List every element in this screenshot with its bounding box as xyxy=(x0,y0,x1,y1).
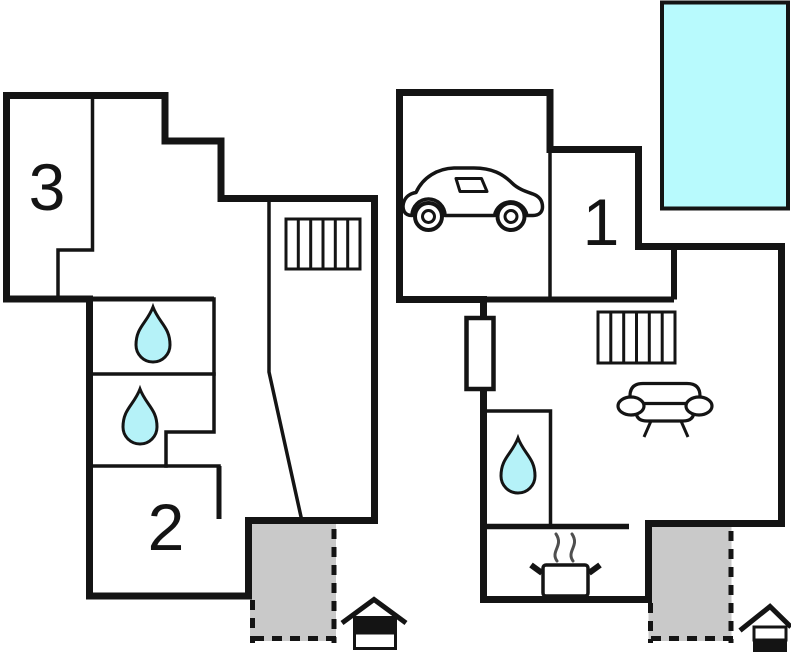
room-label-1: 1 xyxy=(583,185,620,259)
sofa-icon xyxy=(618,384,712,438)
pool-area xyxy=(662,3,788,209)
terrace-area xyxy=(649,527,732,641)
interior-walls xyxy=(58,97,302,519)
water-drop-icon xyxy=(501,438,535,493)
house-level-marker-icon xyxy=(342,600,406,649)
marker-empty-band xyxy=(355,633,396,649)
water-drop-icon xyxy=(123,389,157,444)
ground-floor-plan: 1 xyxy=(400,3,791,652)
marker-empty-band xyxy=(754,627,786,640)
stairs-icon xyxy=(286,219,360,269)
door-marker xyxy=(467,318,494,389)
upper-floor-plan: 3 2 xyxy=(7,96,407,649)
marker-filled-band xyxy=(353,616,397,633)
sofa-armrest xyxy=(618,397,644,415)
water-drop-icon xyxy=(136,307,170,362)
sofa-armrest xyxy=(686,397,712,415)
terrace-area xyxy=(250,524,336,641)
room-label-2: 2 xyxy=(148,490,185,564)
floor-plan: 3 2 xyxy=(0,0,791,652)
marker-filled-band xyxy=(753,640,787,652)
house-level-marker-icon xyxy=(740,607,791,652)
stairs-icon xyxy=(598,312,675,363)
car-window xyxy=(456,179,487,192)
stove-icon xyxy=(531,565,600,596)
car-wheel xyxy=(415,203,442,230)
car-icon xyxy=(403,168,542,230)
car-wheel xyxy=(498,203,525,230)
sofa-legs xyxy=(644,421,688,437)
floor-plan-page: 3 2 xyxy=(0,0,791,652)
room-label-3: 3 xyxy=(29,150,66,224)
steam-icon xyxy=(555,534,575,561)
